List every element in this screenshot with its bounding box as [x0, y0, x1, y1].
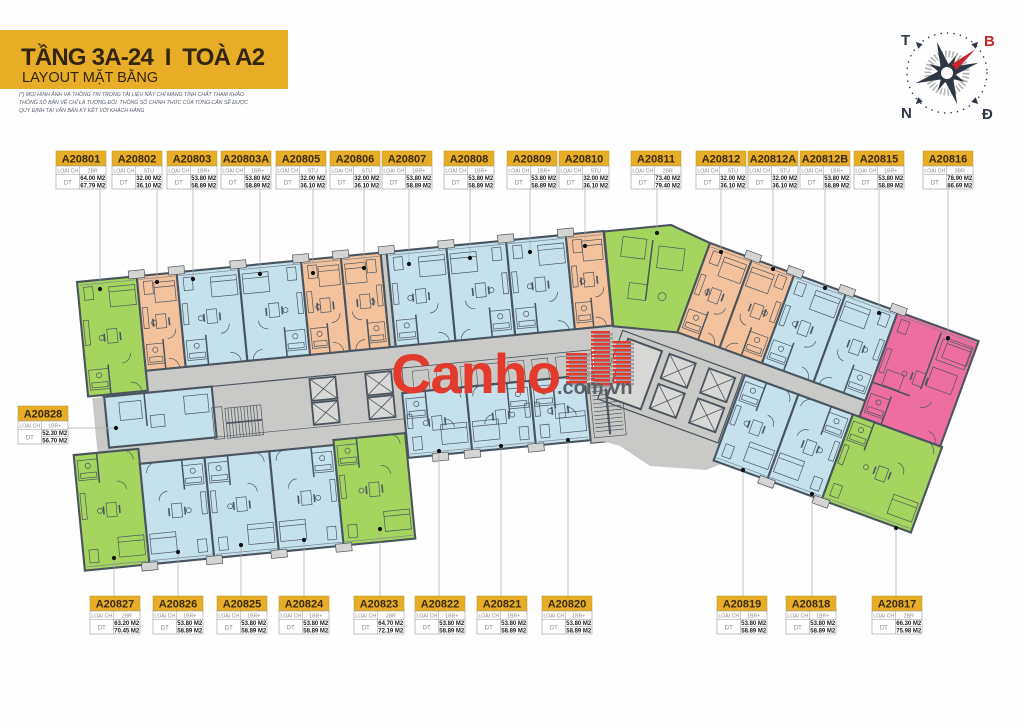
svg-text:67.79 M2: 67.79 M2 [80, 183, 106, 189]
svg-text:A20808: A20808 [450, 154, 489, 166]
svg-text:64.00 M2: 64.00 M2 [80, 176, 106, 182]
svg-text:58.89 M2: 58.89 M2 [468, 183, 494, 189]
svg-text:58.89 M2: 58.89 M2 [191, 183, 217, 189]
svg-text:LOẠI CH: LOẠI CH [749, 168, 770, 174]
svg-text:LOẠI CH: LOẠI CH [801, 168, 822, 174]
svg-text:DT: DT [161, 626, 169, 632]
svg-text:36.10 M2: 36.10 M2 [772, 183, 798, 189]
svg-text:LOẠI CH: LOẠI CH [113, 168, 134, 174]
svg-text:A20820: A20820 [548, 599, 587, 611]
svg-text:3BR: 3BR [955, 168, 965, 174]
svg-text:DT: DT [567, 181, 575, 187]
svg-text:LOẠI CH: LOẠI CH [91, 613, 112, 619]
svg-text:32.00 M2: 32.00 M2 [354, 176, 380, 182]
svg-text:32.00 M2: 32.00 M2 [772, 176, 798, 182]
svg-text:58.89 M2: 58.89 M2 [810, 628, 836, 634]
svg-text:N: N [901, 105, 912, 122]
svg-text:A20803A: A20803A [223, 154, 270, 166]
svg-text:58.89 M2: 58.89 M2 [878, 183, 904, 189]
svg-text:DT: DT [225, 626, 233, 632]
svg-text:A20822: A20822 [421, 599, 460, 611]
svg-text:A20816: A20816 [929, 154, 968, 166]
svg-text:A20803: A20803 [173, 154, 212, 166]
svg-text:A20810: A20810 [565, 154, 604, 166]
svg-text:2BR: 2BR [386, 613, 396, 619]
svg-text:DT: DT [515, 181, 523, 187]
svg-text:DT: DT [880, 626, 888, 632]
svg-text:32.00 M2: 32.00 M2 [136, 176, 162, 182]
svg-text:DT: DT [550, 626, 558, 632]
svg-text:LOẠI CH: LOẠI CH [57, 168, 78, 174]
svg-text:QUY ĐỊNH TẠI VĂN BẢN KÝ KẾT VỚ: QUY ĐỊNH TẠI VĂN BẢN KÝ KẾT VỚI KHÁCH HÀ… [19, 106, 144, 114]
svg-text:58.89 M2: 58.89 M2 [531, 183, 557, 189]
svg-text:DT: DT [26, 436, 34, 442]
svg-text:53.80 M2: 53.80 M2 [241, 621, 267, 627]
svg-text:DT: DT [931, 181, 939, 187]
svg-text:DT: DT [229, 181, 237, 187]
svg-text:73.40 M2: 73.40 M2 [655, 176, 681, 182]
svg-text:53.80 M2: 53.80 M2 [191, 176, 217, 182]
svg-text:58.89 M2: 58.89 M2 [241, 628, 267, 634]
svg-text:A20801: A20801 [62, 154, 101, 166]
svg-text:1BR+: 1BR+ [48, 423, 61, 429]
svg-text:1BR+: 1BR+ [247, 613, 260, 619]
svg-text:36.10 M2: 36.10 M2 [300, 183, 326, 189]
svg-text:LOẠI CH: LOẠI CH [855, 168, 876, 174]
svg-text:STU: STU [362, 168, 373, 174]
svg-text:52.30 M2: 52.30 M2 [42, 431, 68, 437]
svg-text:LOẠI CH: LOẠI CH [154, 613, 175, 619]
svg-text:DT: DT [704, 181, 712, 187]
svg-text:A20823: A20823 [360, 599, 399, 611]
svg-text:64.70 M2: 64.70 M2 [378, 621, 404, 627]
svg-text:32.00 M2: 32.00 M2 [300, 176, 326, 182]
svg-text:2BR: 2BR [122, 613, 132, 619]
svg-text:2BR: 2BR [663, 168, 673, 174]
svg-text:DT: DT [98, 626, 106, 632]
svg-text:1BR+: 1BR+ [507, 613, 520, 619]
svg-text:LOẠI CH: LOẠI CH [222, 168, 243, 174]
svg-text:53.80 M2: 53.80 M2 [468, 176, 494, 182]
svg-text:53.80 M2: 53.80 M2 [406, 176, 432, 182]
svg-text:DT: DT [175, 181, 183, 187]
svg-text:53.80 M2: 53.80 M2 [177, 621, 203, 627]
svg-text:LOẠI CH: LOẠI CH [787, 613, 808, 619]
svg-text:1BR+: 1BR+ [445, 613, 458, 619]
svg-text:LOẠI CH: LOẠI CH [331, 168, 352, 174]
svg-text:DT: DT [725, 626, 733, 632]
svg-text:1BR+: 1BR+ [474, 168, 487, 174]
svg-text:LOẠI CH: LOẠI CH [873, 613, 894, 619]
svg-text:TẦNG 3A-24 I TOÀ A2: TẦNG 3A-24 I TOÀ A2 [21, 43, 265, 71]
svg-text:(*) MỌI HÌNH ẢNH VÀ THÔNG TIN: (*) MỌI HÌNH ẢNH VÀ THÔNG TIN TRONG TÀI … [19, 90, 244, 98]
svg-text:36.10 M2: 36.10 M2 [354, 183, 380, 189]
svg-text:58.89 M2: 58.89 M2 [177, 628, 203, 634]
svg-text:LOẠI CH: LOẠI CH [19, 423, 40, 429]
svg-text:LOẠI CH: LOẠI CH [168, 168, 189, 174]
svg-text:53.80 M2: 53.80 M2 [824, 176, 850, 182]
svg-text:DT: DT [284, 181, 292, 187]
svg-text:53.80 M2: 53.80 M2 [810, 621, 836, 627]
svg-text:1BR+: 1BR+ [309, 613, 322, 619]
svg-text:1BR+: 1BR+ [537, 168, 550, 174]
svg-text:A20825: A20825 [223, 599, 262, 611]
svg-text:2BR: 2BR [88, 168, 98, 174]
svg-text:58.89 M2: 58.89 M2 [741, 628, 767, 634]
svg-text:70.45 M2: 70.45 M2 [114, 628, 140, 634]
svg-text:LOẠI CH: LOẠI CH [445, 168, 466, 174]
svg-text:A20812B: A20812B [802, 154, 849, 166]
svg-text:66.30 M2: 66.30 M2 [896, 621, 922, 627]
svg-text:LOẠI CH: LOẠI CH [508, 168, 529, 174]
svg-text:A20828: A20828 [24, 409, 63, 421]
svg-text:58.89 M2: 58.89 M2 [406, 183, 432, 189]
svg-text:LOẠI CH: LOẠI CH [416, 613, 437, 619]
svg-text:A20824: A20824 [285, 599, 324, 611]
svg-text:A20809: A20809 [513, 154, 552, 166]
svg-text:DT: DT [64, 181, 72, 187]
svg-text:72.19 M2: 72.19 M2 [378, 628, 404, 634]
svg-text:LOẠI CH: LOẠI CH [383, 168, 404, 174]
svg-text:1BR+: 1BR+ [747, 613, 760, 619]
svg-text:1BR+: 1BR+ [183, 613, 196, 619]
svg-text:58.89 M2: 58.89 M2 [566, 628, 592, 634]
svg-text:36.10 M2: 36.10 M2 [720, 183, 746, 189]
svg-text:36.10 M2: 36.10 M2 [583, 183, 609, 189]
svg-text:LOẠI CH: LOẠI CH [924, 168, 945, 174]
svg-text:2BR: 2BR [904, 613, 914, 619]
svg-text:LOẠI CH: LOẠI CH [697, 168, 718, 174]
svg-text:DT: DT [362, 626, 370, 632]
svg-text:LOẠI CH: LOẠI CH [543, 613, 564, 619]
svg-text:STU: STU [728, 168, 739, 174]
svg-text:A20812: A20812 [702, 154, 741, 166]
svg-text:79.40 M2: 79.40 M2 [655, 183, 681, 189]
svg-text:78.90 M2: 78.90 M2 [947, 176, 973, 182]
svg-text:36.10 M2: 36.10 M2 [136, 183, 162, 189]
svg-text:A20821: A20821 [483, 599, 522, 611]
svg-text:A20802: A20802 [118, 154, 157, 166]
svg-text:DT: DT [862, 181, 870, 187]
svg-text:LOẠI CH: LOẠI CH [355, 613, 376, 619]
svg-text:A20819: A20819 [723, 599, 762, 611]
svg-text:32.00 M2: 32.00 M2 [583, 176, 609, 182]
svg-text:LOẠI CH: LOẠI CH [218, 613, 239, 619]
svg-text:58.89 M2: 58.89 M2 [439, 628, 465, 634]
svg-text:.com.vn: .com.vn [557, 377, 633, 399]
svg-text:LOẠI CH: LOẠI CH [560, 168, 581, 174]
svg-text:LOẠI CH: LOẠI CH [280, 613, 301, 619]
svg-text:A20817: A20817 [878, 599, 917, 611]
svg-text:A20806: A20806 [336, 154, 375, 166]
svg-text:A20812A: A20812A [750, 154, 797, 166]
svg-text:Đ: Đ [982, 106, 993, 123]
svg-text:THÔNG SỐ BẢN VẼ CHỈ LÀ TƯƠNG Đ: THÔNG SỐ BẢN VẼ CHỈ LÀ TƯƠNG ĐỐI. THÔNG … [19, 99, 248, 106]
svg-text:63.20 M2: 63.20 M2 [114, 621, 140, 627]
svg-text:1BR+: 1BR+ [251, 168, 264, 174]
svg-text:A20826: A20826 [159, 599, 198, 611]
svg-text:B: B [984, 33, 995, 50]
svg-text:56.70 M2: 56.70 M2 [42, 438, 68, 444]
svg-text:DT: DT [756, 181, 764, 187]
svg-text:DT: DT [485, 626, 493, 632]
svg-text:LOẠI CH: LOẠI CH [718, 613, 739, 619]
svg-text:1BR+: 1BR+ [816, 613, 829, 619]
svg-text:DT: DT [794, 626, 802, 632]
svg-text:T: T [901, 32, 910, 49]
svg-text:STU: STU [144, 168, 155, 174]
svg-text:DT: DT [808, 181, 816, 187]
svg-text:A20811: A20811 [637, 154, 675, 166]
svg-text:A20827: A20827 [96, 599, 135, 611]
svg-text:DT: DT [423, 626, 431, 632]
svg-text:DT: DT [390, 181, 398, 187]
svg-text:53.80 M2: 53.80 M2 [303, 621, 329, 627]
svg-text:75.98 M2: 75.98 M2 [896, 628, 922, 634]
svg-text:58.89 M2: 58.89 M2 [501, 628, 527, 634]
svg-text:DT: DT [452, 181, 460, 187]
svg-text:LOẠI CH: LOẠI CH [632, 168, 653, 174]
svg-text:53.80 M2: 53.80 M2 [531, 176, 557, 182]
svg-text:53.80 M2: 53.80 M2 [566, 621, 592, 627]
svg-text:53.80 M2: 53.80 M2 [245, 176, 271, 182]
svg-text:53.80 M2: 53.80 M2 [878, 176, 904, 182]
svg-text:53.80 M2: 53.80 M2 [741, 621, 767, 627]
svg-text:DT: DT [120, 181, 128, 187]
svg-text:1BR+: 1BR+ [572, 613, 585, 619]
svg-text:STU: STU [308, 168, 319, 174]
svg-text:LOẠI CH: LOẠI CH [277, 168, 298, 174]
svg-text:53.80 M2: 53.80 M2 [501, 621, 527, 627]
svg-text:58.89 M2: 58.89 M2 [245, 183, 271, 189]
svg-text:1BR+: 1BR+ [830, 168, 843, 174]
svg-text:32.00 M2: 32.00 M2 [720, 176, 746, 182]
svg-text:LOẠI CH: LOẠI CH [478, 613, 499, 619]
svg-text:A20805: A20805 [282, 154, 321, 166]
svg-text:58.89 M2: 58.89 M2 [303, 628, 329, 634]
svg-text:Canho: Canho [391, 342, 560, 405]
svg-text:A20807: A20807 [388, 154, 427, 166]
svg-text:DT: DT [287, 626, 295, 632]
svg-text:STU: STU [591, 168, 602, 174]
svg-text:DT: DT [338, 181, 346, 187]
svg-text:1BR+: 1BR+ [412, 168, 425, 174]
svg-text:1BR+: 1BR+ [197, 168, 210, 174]
svg-text:A20815: A20815 [860, 154, 899, 166]
svg-text:STU: STU [780, 168, 791, 174]
svg-text:1BR+: 1BR+ [884, 168, 897, 174]
svg-text:53.80 M2: 53.80 M2 [439, 621, 465, 627]
svg-text:58.89 M2: 58.89 M2 [824, 183, 850, 189]
svg-text:LAYOUT MẶT BẰNG: LAYOUT MẶT BẰNG [22, 68, 158, 86]
svg-text:86.69 M2: 86.69 M2 [947, 183, 973, 189]
svg-text:A20818: A20818 [792, 599, 831, 611]
svg-text:DT: DT [639, 181, 647, 187]
